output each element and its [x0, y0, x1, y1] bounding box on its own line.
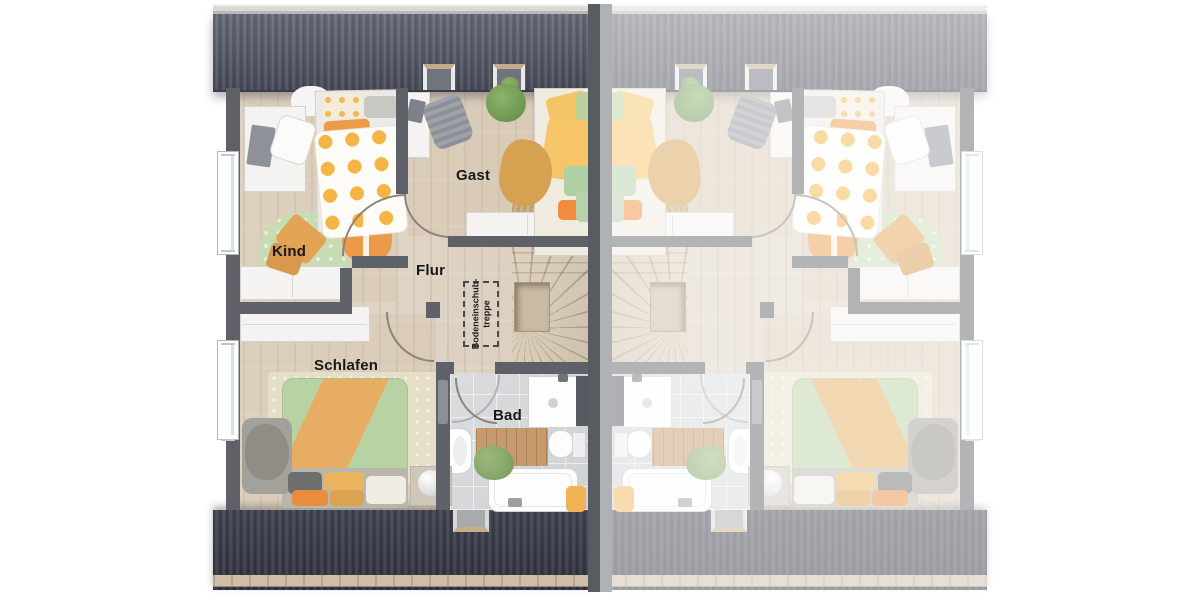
roof-top-band [213, 14, 600, 92]
shower-drain [642, 398, 652, 408]
plant-icon [474, 446, 514, 480]
party-wall [588, 4, 600, 592]
wall-stub [426, 302, 440, 318]
pillow [794, 476, 834, 504]
toilet-tank [572, 432, 586, 458]
wall-flur-bad [495, 362, 588, 374]
pillow [324, 472, 364, 490]
wall-gast-flur [448, 236, 588, 247]
bathroom-cabinet [576, 376, 588, 426]
room-label-schlafen: Schlafen [314, 357, 378, 374]
floorplan-stage: Kind Gast Flur Schlafen Bad Bodeneinschu… [0, 0, 1200, 600]
room-label-kind: Kind [272, 243, 306, 260]
plant-icon [674, 84, 714, 122]
unit-left: Kind Gast Flur Schlafen Bad Bodeneinschu… [0, 0, 600, 600]
eave-strip [213, 575, 600, 587]
plant-icon [686, 446, 726, 480]
roof-window-dormer [423, 64, 455, 90]
towel [614, 486, 634, 512]
eave-strip [600, 575, 987, 587]
room-label-bad: Bad [493, 407, 522, 424]
window [961, 151, 983, 255]
wall-stub [792, 256, 848, 268]
window [217, 340, 239, 440]
bathroom-cabinet [612, 376, 624, 426]
wall-kind-schlafen [848, 302, 974, 314]
roof-top-band [600, 14, 987, 92]
window [217, 151, 239, 255]
shower-head [558, 374, 568, 382]
wall-kind-schlafen [226, 302, 352, 314]
staircase-well [650, 282, 686, 332]
window [961, 340, 983, 440]
roof-window-dormer [745, 64, 777, 90]
throw-blanket [911, 424, 955, 480]
attic-hatch-label: Bodeneinschub- treppe [470, 279, 492, 350]
sink-basin [733, 436, 747, 466]
pillow [838, 94, 878, 118]
room-label-gast: Gast [456, 167, 490, 184]
unit-right-mirrored: Kind Gast Flur Schlafen Bad Bodeneinschu… [600, 0, 1200, 600]
radiator [752, 380, 762, 424]
throw-blanket [245, 424, 289, 480]
pillow [872, 490, 908, 506]
bath-faucet [678, 498, 692, 507]
wall-gast-flur [612, 236, 752, 247]
wall-flur-bad [612, 362, 705, 374]
attic-hatch-box: Bodeneinschub- treppe [463, 281, 499, 347]
wall-kind-gast [792, 88, 804, 194]
radiator [438, 380, 448, 424]
toilet-bowl [626, 430, 652, 458]
toilet-tank [614, 432, 628, 458]
shower-head [632, 374, 642, 382]
roof-window-dormer [711, 510, 747, 532]
wall-kind-gast [396, 88, 408, 194]
shower-drain [548, 398, 558, 408]
wall-stub [746, 362, 764, 374]
roof-ridge-cap [600, 4, 987, 14]
pillow [836, 490, 870, 506]
staircase-well [514, 282, 550, 332]
roof-ridge-cap [213, 4, 600, 14]
pillow [364, 96, 398, 118]
room-label-flur: Flur [416, 262, 445, 279]
wall-stub [760, 302, 774, 318]
bathtub-inner [494, 473, 572, 507]
pillow [292, 490, 328, 506]
pillow [322, 94, 362, 118]
pillow [836, 472, 876, 490]
bathtub-inner [628, 473, 706, 507]
party-wall [600, 4, 612, 592]
wall-stub [436, 362, 454, 374]
pillow [802, 96, 836, 118]
bath-faucet [508, 498, 522, 507]
sink-basin [453, 436, 467, 466]
towel [566, 486, 586, 512]
plant-icon [486, 84, 526, 122]
wall-stub [352, 256, 408, 268]
toilet-bowl [548, 430, 574, 458]
pillow [330, 490, 364, 506]
roof-window-dormer [453, 510, 489, 532]
pillow [366, 476, 406, 504]
